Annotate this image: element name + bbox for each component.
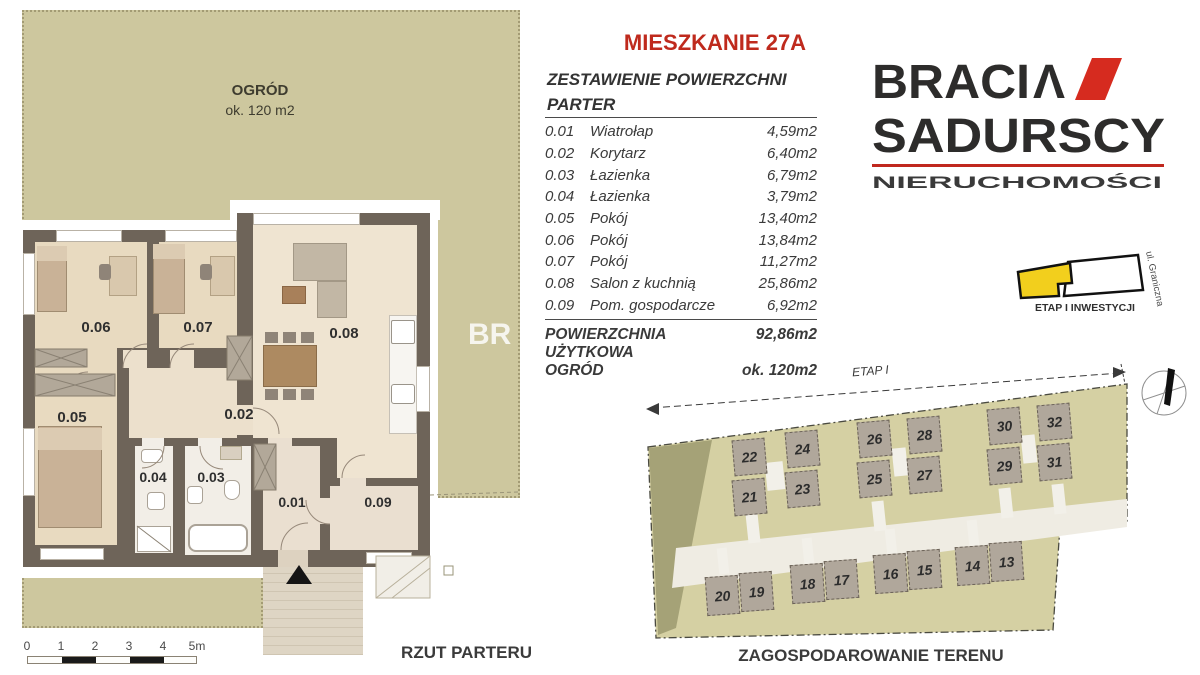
building-unit: 21 bbox=[731, 478, 767, 517]
scale-tick: 0 bbox=[24, 639, 31, 653]
table-row: 0.08Salon z kuchnią25,86m2 bbox=[545, 273, 817, 295]
building-unit: 28 bbox=[906, 416, 942, 455]
table-row: 0.01Wiatrołap4,59m2 bbox=[545, 121, 817, 143]
building-unit: 32 bbox=[1036, 403, 1072, 442]
total-area-row: POWIERZCHNIA UŻYTKOWA 92,86m2 bbox=[545, 326, 817, 362]
scale-tick: 1 bbox=[58, 639, 65, 653]
door-arc bbox=[281, 523, 308, 550]
etap-dimension-label: ETAP I bbox=[852, 363, 890, 380]
table-header-line1: ZESTAWIENIE POWIERZCHNI bbox=[547, 70, 787, 90]
plot-dashed-line bbox=[430, 492, 518, 495]
apartment-title: MIESZKANIE 27A bbox=[575, 30, 855, 56]
table-row: 0.02Korytarz6,40m2 bbox=[545, 143, 817, 165]
table-row: 0.09Pom. gospodarcze6,92m2 bbox=[545, 295, 817, 317]
table-rule-top bbox=[545, 117, 817, 118]
building-unit: 31 bbox=[1036, 443, 1072, 482]
building-unit: 14 bbox=[955, 545, 991, 586]
watermark-text: BR bbox=[468, 318, 511, 352]
logo-red-parallelogram bbox=[1075, 58, 1122, 100]
table-header-line2: PARTER bbox=[547, 95, 615, 115]
door-arc bbox=[306, 500, 330, 524]
inset-plot-white bbox=[1064, 255, 1143, 296]
site-plan-caption: ZAGOSPODAROWANIE TERENU bbox=[676, 646, 1066, 666]
street-label: ul. Graniczna bbox=[1143, 250, 1166, 308]
building-unit: 18 bbox=[790, 563, 826, 604]
scale-tick: 5m bbox=[189, 639, 206, 653]
building-unit: 15 bbox=[907, 549, 943, 590]
door-arc bbox=[170, 344, 194, 368]
plot-marker bbox=[444, 566, 453, 575]
building-unit: 27 bbox=[906, 456, 942, 495]
building-unit: 23 bbox=[784, 470, 820, 509]
logo-tagline: NIERUCHOMOŚCI bbox=[872, 173, 1162, 192]
logo-lambda-mark: Λ bbox=[1033, 56, 1065, 109]
building-unit: 17 bbox=[824, 559, 860, 600]
building-unit: 29 bbox=[986, 447, 1022, 486]
compass-icon bbox=[1142, 368, 1186, 415]
dimension-arrow-right bbox=[1113, 367, 1126, 378]
inset-map-caption: ETAP I INWESTYCJI bbox=[1012, 302, 1158, 314]
logo-word2: SADURSCY bbox=[872, 110, 1165, 163]
building-unit: 16 bbox=[873, 553, 909, 594]
door-arc bbox=[253, 408, 279, 434]
logo-word1: BRACI bbox=[872, 56, 1030, 109]
door-arc bbox=[200, 446, 223, 469]
table-row: 0.04Łazienka3,79m2 bbox=[545, 186, 817, 208]
building-unit: 20 bbox=[705, 575, 741, 616]
area-table: 0.01Wiatrołap4,59m2 0.02Korytarz6,40m2 0… bbox=[545, 121, 817, 316]
table-row: 0.03Łazienka6,79m2 bbox=[545, 164, 817, 186]
table-rule-bottom bbox=[545, 319, 817, 320]
logo-red-line bbox=[872, 164, 1164, 167]
company-logo: BRACI Λ SADURSCY NIERUCHOMOŚCI bbox=[870, 52, 1190, 192]
door-arc bbox=[123, 344, 147, 368]
scale-tick: 3 bbox=[126, 639, 133, 653]
total-value: 92,86m2 bbox=[756, 326, 817, 362]
total-label: POWIERZCHNIA UŻYTKOWA bbox=[545, 326, 756, 362]
table-row: 0.06Pokój13,84m2 bbox=[545, 229, 817, 251]
entrance-arrow bbox=[286, 565, 312, 584]
table-row: 0.05Pokój13,40m2 bbox=[545, 208, 817, 230]
building-unit: 24 bbox=[784, 430, 820, 469]
door-arc bbox=[342, 455, 365, 478]
floor-plan-caption: RZUT PARTERU bbox=[332, 643, 532, 663]
scale-tick: 2 bbox=[92, 639, 99, 653]
building-unit: 22 bbox=[731, 438, 767, 477]
building-unit: 19 bbox=[739, 571, 775, 612]
building-unit: 13 bbox=[989, 541, 1025, 582]
door-arc bbox=[142, 446, 164, 468]
flyer-page: OGRÓD ok. 120 m2 bbox=[0, 0, 1200, 675]
side-steps bbox=[376, 556, 430, 598]
dimension-arrow-left bbox=[646, 403, 659, 415]
scale-tick: 4 bbox=[160, 639, 167, 653]
building-unit: 26 bbox=[856, 420, 892, 459]
table-row: 0.07Pokój11,27m2 bbox=[545, 251, 817, 273]
building-unit: 30 bbox=[986, 407, 1022, 446]
scale-bar bbox=[27, 656, 197, 664]
building-unit: 25 bbox=[856, 460, 892, 499]
